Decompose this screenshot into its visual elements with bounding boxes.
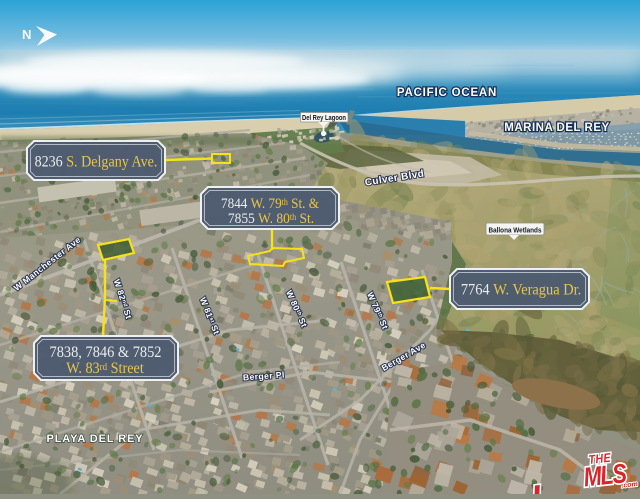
svg-text:Ballona Wetlands: Ballona Wetlands [489, 227, 542, 234]
svg-text:7838, 7846 & 7852: 7838, 7846 & 7852 [50, 343, 162, 361]
svg-text:7764 W. Veragua Dr.: 7764 W. Veragua Dr. [461, 281, 581, 299]
svg-text:N: N [22, 27, 31, 42]
svg-text:PLAYA DEL REY: PLAYA DEL REY [46, 433, 143, 445]
svg-text:Del Rey Lagoon: Del Rey Lagoon [302, 115, 346, 122]
svg-text:7855 W. 80th St.: 7855 W. 80th St. [228, 210, 314, 227]
svg-text:PACIFIC OCEAN: PACIFIC OCEAN [397, 87, 497, 99]
svg-text:MARINA DEL REY: MARINA DEL REY [504, 122, 609, 134]
svg-text:8236 S. Delgany Ave.: 8236 S. Delgany Ave. [35, 154, 158, 171]
